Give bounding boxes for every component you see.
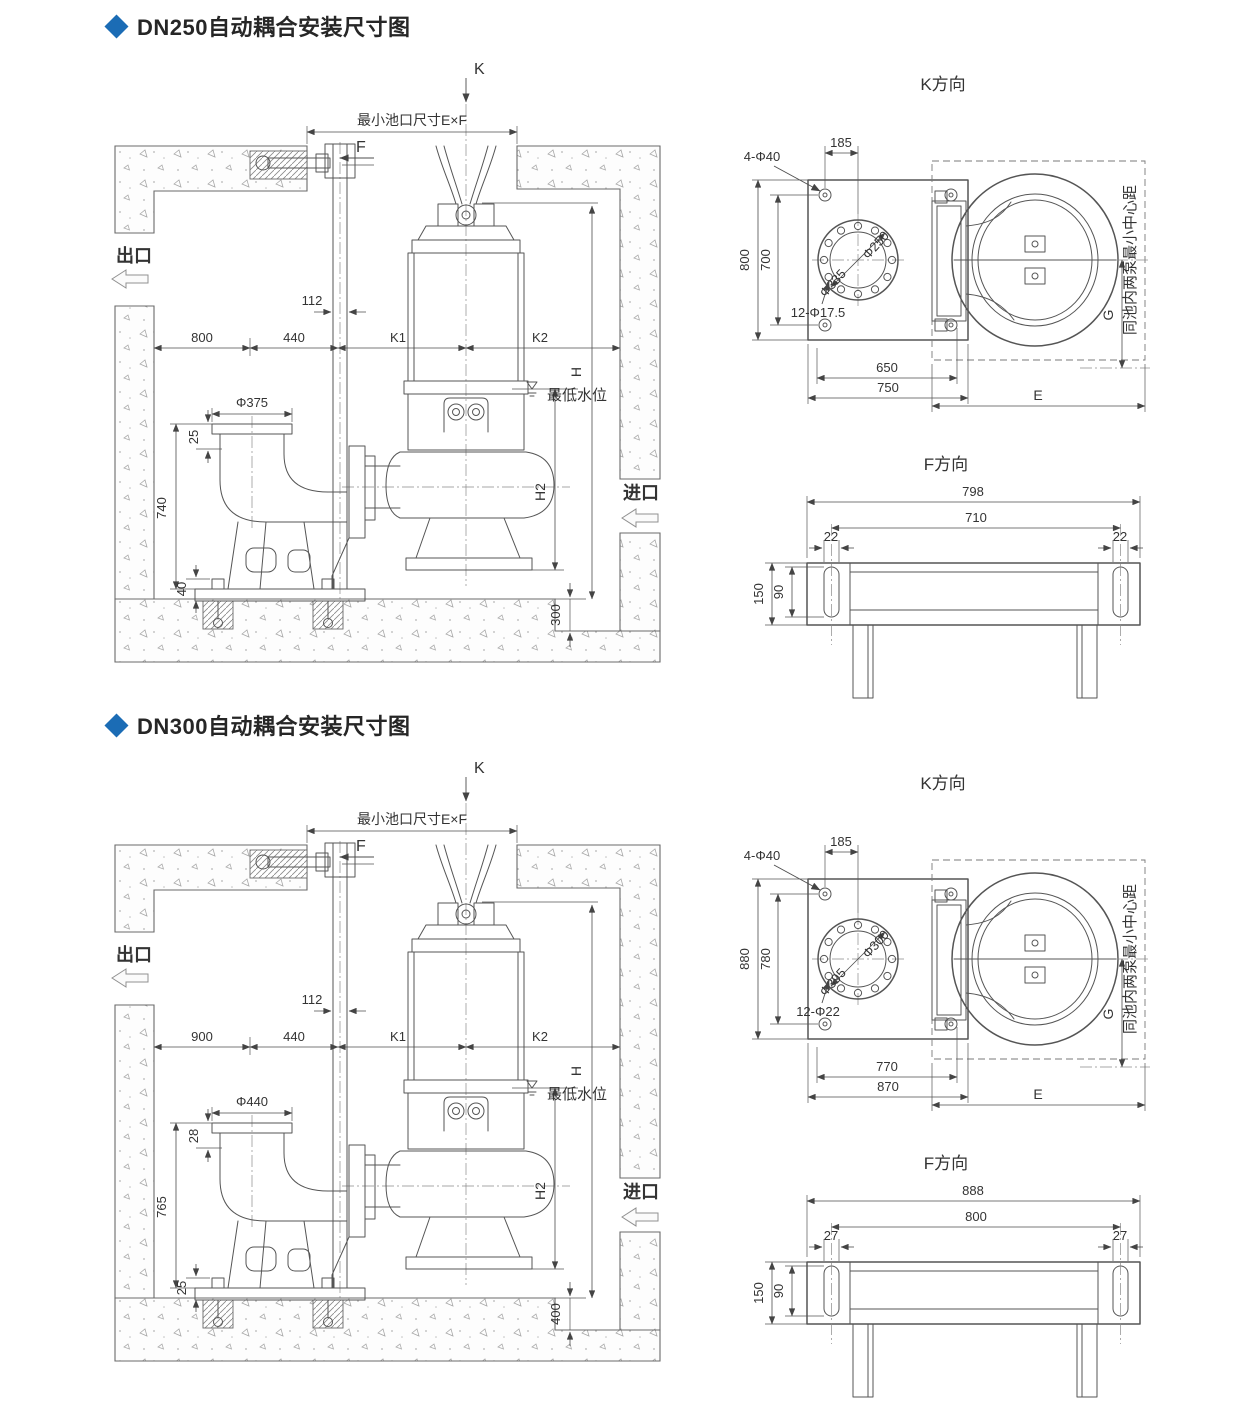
dim-anchor-label: 25 — [174, 1281, 189, 1295]
dim-slot-width-left-label: 22 — [824, 529, 838, 544]
outlet-label: 出口 — [116, 245, 152, 266]
foundation-bolt-head — [212, 1278, 224, 1288]
f-direction-view: F方向 888 800 27 — [730, 1139, 1258, 1397]
pit-floor — [115, 599, 660, 662]
k-view-title: K方向 — [920, 75, 965, 94]
dim-k2-label: K2 — [532, 1029, 548, 1044]
dim-flange-label: Φ440 — [236, 1094, 268, 1109]
bracket-leg-left — [853, 1324, 873, 1397]
dim-650-label: 770 — [876, 1059, 898, 1074]
foundation-bolt-head — [212, 579, 224, 589]
cable-gland — [474, 204, 494, 226]
min-water-level-label: 最低水位 — [547, 1086, 607, 1103]
diamond-bullet-icon — [104, 14, 128, 38]
dim-k2-label: K2 — [532, 330, 548, 345]
dim-d2-label: 440 — [283, 330, 305, 345]
dim-750-label: 870 — [877, 1079, 899, 1094]
dim-sump-depth-label: 300 — [548, 604, 563, 626]
suction-ring — [406, 1257, 532, 1269]
dim-elbow-height-label: 740 — [154, 497, 169, 519]
hub-block — [1025, 236, 1045, 252]
flange-outer-dia-label: Φ395 — [816, 965, 849, 999]
cable-gland — [438, 903, 458, 925]
elevation-drawing: K F 最小池口尺寸E×F 出口 进口 112 800 440 K1 K2 — [100, 56, 680, 704]
anchor-embed-block — [250, 850, 307, 878]
rail-plate-inner — [937, 905, 961, 1015]
bracket-eye — [448, 404, 464, 420]
dim-e-label: E — [1033, 387, 1042, 403]
dim-slot-width-left-label: 27 — [824, 1228, 838, 1243]
section-title-text: DN250自动耦合安装尺寸图 — [137, 10, 410, 42]
flange-outer-dia-label: Φ335 — [816, 266, 849, 300]
elevation-drawing: K F 最小池口尺寸E×F 出口 进口 112 900 440 K1 K2 — [100, 755, 680, 1403]
dim-h-label: H — [568, 367, 584, 377]
dim-total-width-label: 798 — [962, 484, 984, 499]
section-title: DN250自动耦合安装尺寸图 — [108, 10, 410, 42]
hub-block — [1025, 967, 1045, 983]
dim-bolt-span-v-label: 780 — [758, 948, 773, 970]
coupling-guide — [332, 1237, 349, 1288]
bracket-eye-hole — [453, 1108, 460, 1115]
dim-slot-span-label: 710 — [965, 510, 987, 525]
dim-flange-drop-label: 25 — [186, 430, 201, 444]
dim-e-label: E — [1033, 1086, 1042, 1102]
dim-h2-label: H2 — [532, 483, 548, 501]
bracket-leg-right — [1077, 1324, 1097, 1397]
dim-slot-width-right-label: 27 — [1113, 1228, 1127, 1243]
right-wall-lower — [620, 1232, 660, 1330]
pool-opening-dim-label: 最小池口尺寸E×F — [357, 112, 467, 128]
dim-750-label: 750 — [877, 380, 899, 395]
dim-k1-label: K1 — [390, 1029, 406, 1044]
anchor-embed-block — [250, 151, 307, 179]
f-view-title: F方向 — [924, 1154, 968, 1173]
pedestal-cutout — [246, 548, 276, 572]
dim-flange-drop-label: 28 — [186, 1129, 201, 1143]
bracket-leg-right — [1077, 625, 1097, 698]
volute-casing — [386, 1151, 554, 1217]
suction-throat — [966, 202, 1014, 320]
suction-throat — [966, 901, 1014, 1019]
pump-mid-body — [408, 394, 524, 450]
dim-slot-length-label: 90 — [771, 1284, 786, 1298]
bracket-eye-hole — [453, 409, 460, 416]
f-direction-label: F — [356, 838, 366, 855]
right-wall-upper — [517, 146, 660, 479]
coupling-guide — [332, 538, 349, 589]
cable-gland — [474, 903, 494, 925]
section-title-text: DN300自动耦合安装尺寸图 — [137, 709, 410, 741]
dim-beam-height-label: 150 — [751, 583, 766, 605]
elbow-inner — [284, 1133, 347, 1191]
suction-bell — [416, 518, 520, 558]
k-direction-view: K方向 Φ335 Φ250 1 — [730, 58, 1258, 443]
rail-width-dim-label: 112 — [302, 992, 323, 1007]
k-direction-label: K — [474, 61, 485, 78]
bracket-eye-hole — [473, 409, 480, 416]
outlet-label: 出口 — [116, 944, 152, 965]
pump-mid-body — [408, 1093, 524, 1149]
dim-d2-label: 440 — [283, 1029, 305, 1044]
dimension-drawing-section: DN250自动耦合安装尺寸图 — [0, 0, 1258, 699]
pedestal-legs — [228, 522, 314, 589]
cable-gland — [438, 204, 458, 226]
pool-opening-dim-label: 最小池口尺寸E×F — [357, 811, 467, 827]
dim-d1-label: 800 — [191, 330, 213, 345]
pedestal-cutout — [246, 1247, 276, 1271]
rail-plate-inner — [937, 206, 961, 316]
inlet-arrow-icon — [622, 509, 658, 527]
coupling-claw — [349, 1145, 365, 1237]
min-center-distance-note: 同池内两泵最小中心距 — [1122, 884, 1139, 1034]
pit-floor — [115, 1298, 660, 1361]
corner-bolt-label: 4-Φ40 — [744, 848, 780, 863]
right-wall-upper — [517, 845, 660, 1178]
dim-185-label: 185 — [830, 834, 852, 849]
inlet-label: 进口 — [623, 483, 659, 503]
dim-bolt-span-v-label: 700 — [758, 249, 773, 271]
pedestal-cutout — [288, 1249, 310, 1271]
dim-flange-label: Φ375 — [236, 395, 268, 410]
dimension-drawing-section: DN300自动耦合安装尺寸图 — [0, 699, 1258, 1398]
left-wall — [115, 1005, 154, 1298]
f-direction-view: F方向 798 710 22 — [730, 440, 1258, 698]
bracket-leg-left — [853, 625, 873, 698]
suction-bell — [416, 1217, 520, 1257]
pedestal-legs — [228, 1221, 314, 1288]
f-direction-label: F — [356, 139, 366, 156]
dim-sump-depth-label: 400 — [548, 1303, 563, 1325]
dim-anchor-label: 40 — [174, 582, 189, 596]
bracket-eye — [448, 1103, 464, 1119]
dim-h2-label: H2 — [532, 1182, 548, 1200]
inlet-label: 进口 — [623, 1182, 659, 1202]
inlet-arrow-icon — [622, 1208, 658, 1226]
dim-beam-height-label: 150 — [751, 1282, 766, 1304]
dim-elbow-height-label: 765 — [154, 1196, 169, 1218]
pedestal-cutout — [288, 550, 310, 572]
dim-slot-width-right-label: 22 — [1113, 529, 1127, 544]
k-direction-label: K — [474, 760, 485, 777]
dim-plate-height-label: 880 — [737, 948, 752, 970]
dim-g-label: G — [1100, 310, 1116, 321]
min-center-distance-note: 同池内两泵最小中心距 — [1122, 185, 1139, 335]
min-water-level-label: 最低水位 — [547, 387, 607, 404]
volute-casing — [386, 452, 554, 518]
section-title: DN300自动耦合安装尺寸图 — [108, 709, 410, 741]
bracket-eye-hole — [473, 1108, 480, 1115]
page-content: DN250自动耦合安装尺寸图 — [0, 0, 1258, 1398]
dim-185-label: 185 — [830, 135, 852, 150]
hub-block — [1025, 935, 1045, 951]
bracket-eye — [468, 404, 484, 420]
dim-d1-label: 900 — [191, 1029, 213, 1044]
elbow-inner — [284, 434, 347, 492]
dim-650-label: 650 — [876, 360, 898, 375]
anchor-bolt-head — [316, 154, 328, 172]
dim-g-label: G — [1100, 1009, 1116, 1020]
k-direction-view: K方向 Φ395 Φ300 1 — [730, 757, 1258, 1142]
dim-h-label: H — [568, 1066, 584, 1076]
bolt-circle-label: 12-Φ17.5 — [791, 305, 845, 320]
coupling-claw — [349, 446, 365, 538]
dim-slot-span-label: 800 — [965, 1209, 987, 1224]
dim-total-width-label: 888 — [962, 1183, 984, 1198]
bracket-eye — [468, 1103, 484, 1119]
anchor-bolt-head — [316, 853, 328, 871]
rail-width-dim-label: 112 — [302, 293, 323, 308]
diamond-bullet-icon — [104, 713, 128, 737]
f-view-title: F方向 — [924, 455, 968, 474]
outlet-arrow-icon — [112, 270, 148, 288]
dim-plate-height-label: 800 — [737, 249, 752, 271]
corner-bolt-label: 4-Φ40 — [744, 149, 780, 164]
dim-k1-label: K1 — [390, 330, 406, 345]
k-view-title: K方向 — [920, 774, 965, 793]
left-wall — [115, 306, 154, 599]
suction-ring — [406, 558, 532, 570]
bolt-circle-label: 12-Φ22 — [796, 1004, 840, 1019]
right-wall-lower — [620, 533, 660, 631]
hub-block — [1025, 268, 1045, 284]
dim-slot-length-label: 90 — [771, 585, 786, 599]
outlet-arrow-icon — [112, 969, 148, 987]
